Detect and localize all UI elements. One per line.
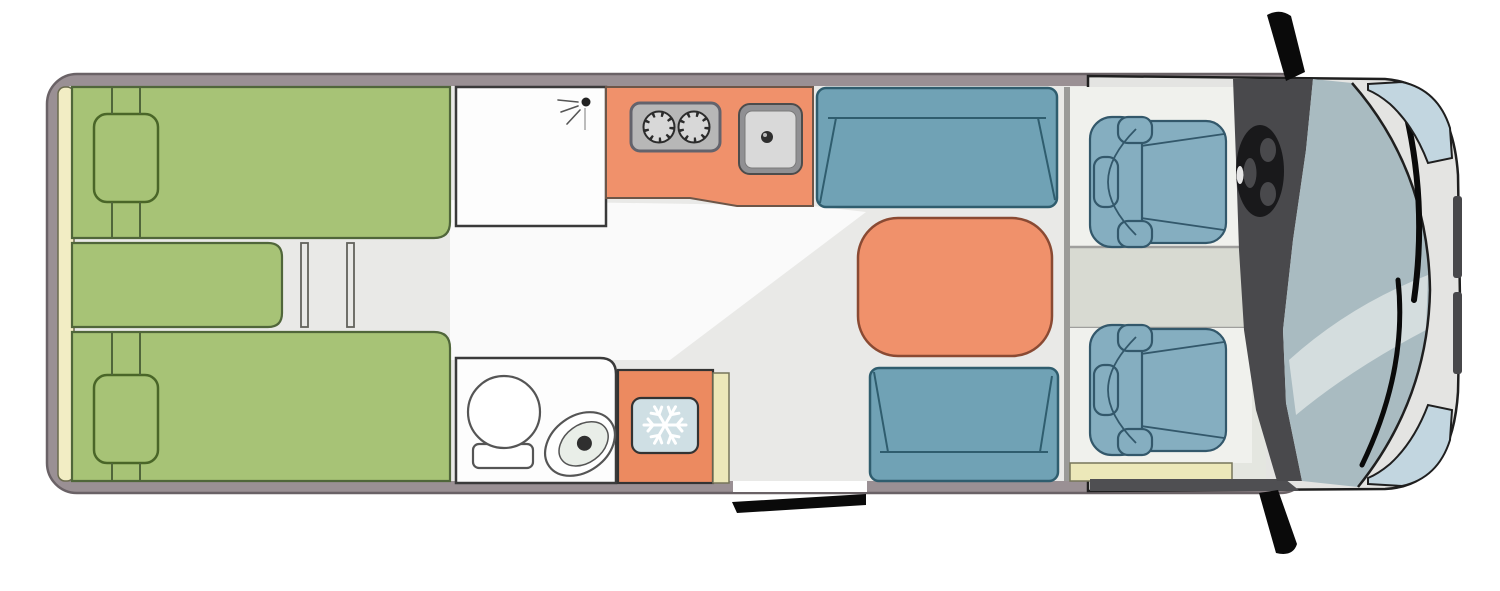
front-grille-top [1453,196,1462,278]
passenger-seat [1090,325,1226,455]
side-mirror-top [1267,12,1305,81]
cab-aisle [1070,247,1252,328]
stove-burner-right [679,112,710,143]
cab-step-strip [1070,463,1232,481]
entry-door [733,481,867,492]
dinette-bench-rear [870,368,1058,481]
dinette-table [858,218,1052,356]
dinette-bench-front [817,88,1057,207]
stove-burner-left [644,112,675,143]
pillow-bottom [94,375,158,463]
driver-seat [1090,117,1226,247]
cab-partition-line [1064,87,1070,481]
steering-wheel [1236,125,1284,217]
cab-lower-trim [1090,479,1300,491]
front-grille-bottom [1453,292,1462,374]
washbasin [468,376,540,448]
bed-step-left [301,243,308,327]
sink [739,104,802,174]
pillow-top [94,114,158,202]
bed-connector-section [72,243,282,327]
wardrobe-strip [713,373,729,483]
shower-cabin [456,87,606,226]
entry-step [732,494,866,513]
floor-plan-canvas: Motorhome floor plan - top view [0,0,1500,591]
side-mirror-bottom [1259,490,1297,554]
motorhome-floor-plan: Motorhome floor plan - top view [0,0,1500,591]
bed-step-right [347,243,354,327]
